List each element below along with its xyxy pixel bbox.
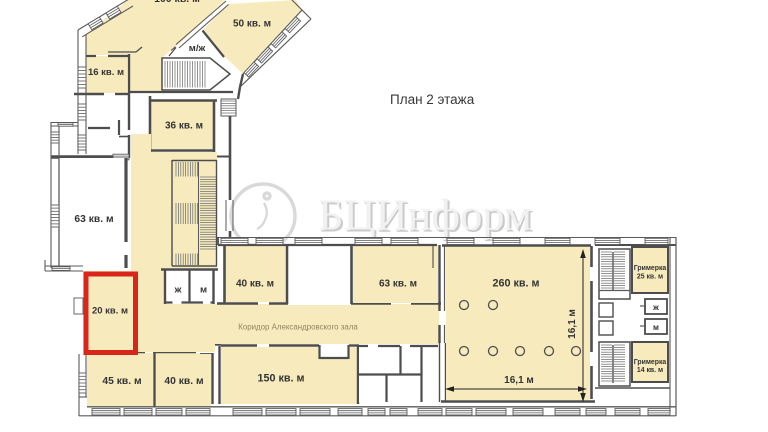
svg-text:260 кв. м: 260 кв. м: [492, 278, 539, 290]
svg-text:45 кв. м: 45 кв. м: [102, 376, 141, 387]
svg-text:14 кв. м: 14 кв. м: [637, 367, 663, 374]
svg-text:м/ж: м/ж: [189, 43, 206, 54]
svg-text:ж: ж: [652, 303, 659, 312]
svg-text:Гримерка: Гримерка: [634, 359, 667, 366]
svg-text:100 кв. м: 100 кв. м: [154, 0, 200, 5]
svg-text:40 кв. м: 40 кв. м: [164, 376, 203, 387]
svg-text:Коридор Александровского зала: Коридор Александровского зала: [238, 323, 358, 332]
svg-text:План 2 этажа: План 2 этажа: [390, 92, 475, 107]
svg-text:63 кв. м: 63 кв. м: [74, 214, 113, 225]
svg-text:40 кв. м: 40 кв. м: [236, 279, 274, 290]
svg-text:20 кв. м: 20 кв. м: [92, 306, 128, 317]
svg-text:м: м: [200, 285, 207, 296]
svg-text:Гримерка: Гримерка: [634, 265, 667, 272]
svg-text:16,1 м: 16,1 м: [504, 375, 534, 386]
svg-text:36 кв. м: 36 кв. м: [165, 121, 203, 132]
svg-text:ж: ж: [174, 285, 182, 296]
svg-text:150 кв. м: 150 кв. м: [257, 373, 304, 385]
svg-text:16,1 м: 16,1 м: [567, 309, 578, 339]
svg-text:16 кв. м: 16 кв. м: [88, 67, 124, 78]
svg-text:50 кв. м: 50 кв. м: [233, 19, 271, 30]
svg-text:БЦИнформ: БЦИнформ: [318, 191, 532, 240]
svg-text:63 кв. м: 63 кв. м: [379, 279, 417, 290]
svg-text:25 кв. м: 25 кв. м: [637, 274, 663, 281]
svg-text:м: м: [653, 323, 659, 332]
